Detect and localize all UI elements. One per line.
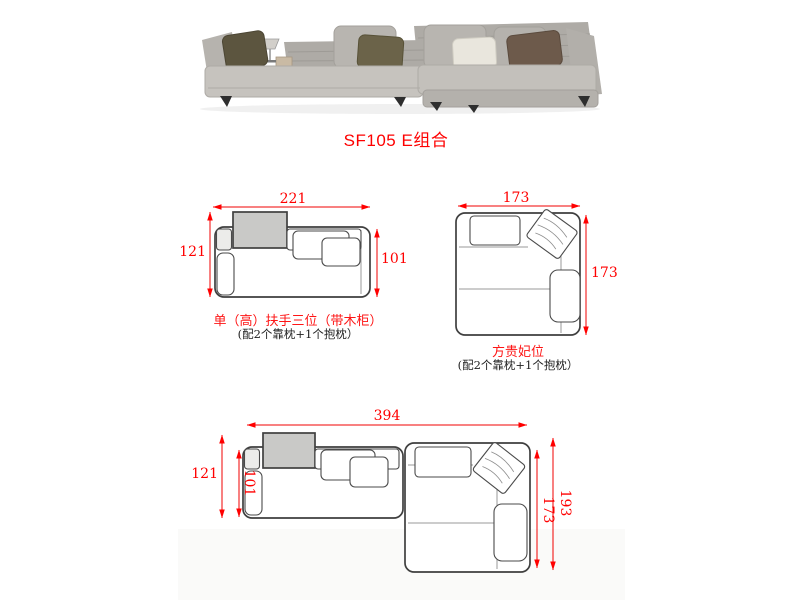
pillow-top-view [350, 457, 388, 487]
dimension-depth-body: 101 [241, 470, 257, 497]
dimension-width: 221 [280, 191, 307, 207]
wood-cabinet-top-view [263, 433, 315, 468]
sofa-seat [205, 66, 423, 97]
diagram-combination: 394 121 101 173 193 [193, 405, 583, 580]
chaise-note: (配2个靠枕+1个抱枕） [428, 357, 608, 373]
pillow-olive [357, 35, 404, 71]
armrest-pad [245, 449, 260, 469]
diagram-single-sofa: 221 121 101 [183, 192, 415, 317]
seat-cushion [217, 253, 234, 295]
single-sofa-note: (配2个靠枕+1个抱枕） [188, 326, 408, 342]
side-pillow-top-view [550, 270, 580, 322]
back-cushion-top-view [415, 447, 471, 477]
armrest-pad [217, 229, 232, 250]
dimension-depth-body: 101 [381, 251, 408, 267]
pillow-top-view [322, 238, 360, 266]
dimension-chaise-depth: 173 [540, 497, 556, 524]
dimension-total-depth: 193 [557, 490, 573, 517]
dimension-width: 173 [503, 190, 530, 206]
wood-cabinet-top-view [233, 212, 287, 248]
pillow-dark-olive [222, 30, 269, 71]
dimension-depth-total: 121 [179, 244, 206, 260]
chaise-front [423, 90, 598, 107]
dimension-total-width: 394 [374, 408, 401, 424]
side-pillow-top-view [494, 504, 527, 561]
dimension-depth: 173 [591, 265, 618, 281]
page: SF105 E组合 221 121 101 单（高）扶手三位（带木柜） (配2个… [0, 0, 800, 600]
wood-cabinet-top [276, 57, 292, 66]
back-cushion-top-view [470, 216, 520, 245]
dimension-depth-left: 121 [191, 466, 218, 482]
diagram-chaise: 173 173 [448, 190, 628, 350]
product-photo [168, 4, 616, 118]
product-title: SF105 E组合 [0, 126, 792, 151]
